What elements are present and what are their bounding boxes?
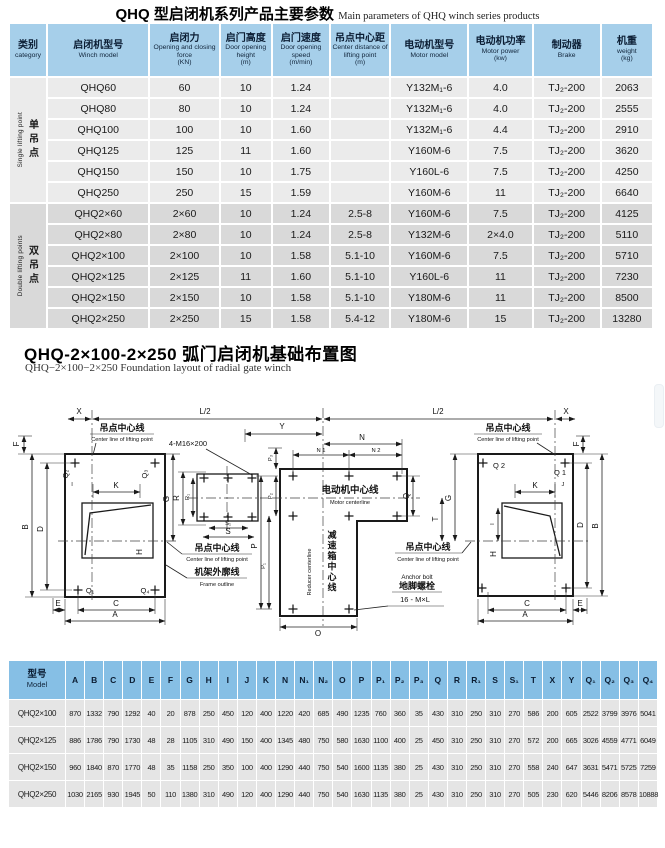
value-cell: 11 bbox=[469, 267, 531, 286]
reducer-pad: R R₁ S₁ S bbox=[172, 466, 268, 537]
value-cell: 60 bbox=[150, 78, 218, 97]
value-cell: 100 bbox=[238, 754, 256, 780]
column-header: 启闭力Opening and closing force(KN) bbox=[150, 24, 218, 76]
value-cell: 1290 bbox=[276, 781, 294, 807]
value-cell: 620 bbox=[562, 781, 580, 807]
bolt-label-q1: Q₁ bbox=[86, 586, 95, 595]
value-cell: 558 bbox=[524, 754, 542, 780]
svg-text:Anchor bolt: Anchor bolt bbox=[401, 574, 433, 581]
value-cell: Y160M-6 bbox=[391, 141, 467, 160]
column-header: I bbox=[219, 661, 237, 699]
value-cell: 1.24 bbox=[273, 78, 329, 97]
value-cell: 2×250 bbox=[150, 309, 218, 328]
svg-text:J: J bbox=[562, 482, 565, 488]
value-cell: TJ₂-200 bbox=[534, 183, 600, 202]
lifting-callout-top-right: 吊点中心线 Center line of lifting point bbox=[474, 422, 554, 454]
value-cell: 685 bbox=[314, 700, 332, 726]
svg-text:机架外廓线: 机架外廓线 bbox=[194, 566, 239, 577]
svg-text:G: G bbox=[444, 495, 453, 501]
value-cell: 1158 bbox=[181, 754, 199, 780]
value-cell: 25 bbox=[410, 727, 428, 753]
bolt-spec-callout: 4-M16×200 bbox=[169, 439, 207, 448]
svg-text:地脚螺栓: 地脚螺栓 bbox=[399, 580, 435, 591]
value-cell: Y180M-6 bbox=[391, 288, 467, 307]
value-cell: 270 bbox=[505, 754, 523, 780]
value-cell: 200 bbox=[543, 727, 561, 753]
table-row: QHQ2×15096018408701770483511582503501004… bbox=[9, 754, 657, 780]
svg-text:吊点中心线: 吊点中心线 bbox=[405, 541, 450, 552]
model-cell: QHQ2×125 bbox=[48, 267, 148, 286]
value-cell: TJ₂-200 bbox=[534, 204, 600, 223]
value-cell: TJ₂-200 bbox=[534, 162, 600, 181]
value-cell: 7.5 bbox=[469, 162, 531, 181]
column-header: X bbox=[543, 661, 561, 699]
value-cell: 310 bbox=[448, 781, 466, 807]
value-cell: 3620 bbox=[602, 141, 652, 160]
value-cell: 13280 bbox=[602, 309, 652, 328]
value-cell: 100 bbox=[150, 120, 218, 139]
value-cell: 15 bbox=[221, 183, 271, 202]
value-cell: 350 bbox=[219, 754, 237, 780]
value-cell: 8500 bbox=[602, 288, 652, 307]
value-cell: 5.1-10 bbox=[331, 288, 389, 307]
reducer-centerline-label-en: Reducer centerline bbox=[307, 549, 313, 596]
value-cell: 2×150 bbox=[150, 288, 218, 307]
value-cell: 310 bbox=[200, 781, 218, 807]
value-cell: 430 bbox=[429, 781, 447, 807]
value-cell: 310 bbox=[448, 700, 466, 726]
value-cell: Y180M-6 bbox=[391, 309, 467, 328]
anchor-bolt-callout: Anchor bolt 地脚螺栓 16 - M×L bbox=[354, 574, 444, 610]
value-cell: 430 bbox=[429, 754, 447, 780]
value-cell: 10 bbox=[221, 99, 271, 118]
svg-text:Center line of lifting point: Center line of lifting point bbox=[186, 557, 248, 563]
value-cell: 878 bbox=[181, 700, 199, 726]
value-cell: 2×80 bbox=[150, 225, 218, 244]
value-cell: TJ₂-200 bbox=[534, 78, 600, 97]
value-cell: 5.1-10 bbox=[331, 267, 389, 286]
model-cell: QHQ2×100 bbox=[9, 700, 65, 726]
svg-text:Center line of lifting point: Center line of lifting point bbox=[397, 557, 459, 563]
svg-text:16 - M×L: 16 - M×L bbox=[400, 595, 430, 604]
svg-text:N 1: N 1 bbox=[316, 448, 325, 454]
value-cell: 120 bbox=[238, 781, 256, 807]
value-cell: 440 bbox=[295, 754, 313, 780]
table-row: QHQ250250151.59Y160M-611TJ₂-2006640 bbox=[10, 183, 652, 202]
value-cell: 605 bbox=[562, 700, 580, 726]
column-header: G bbox=[181, 661, 199, 699]
column-header: J bbox=[238, 661, 256, 699]
value-cell: 1.59 bbox=[273, 183, 329, 202]
column-header: N₂ bbox=[314, 661, 332, 699]
column-header: H bbox=[200, 661, 218, 699]
value-cell: 48 bbox=[142, 727, 160, 753]
value-cell: 250 bbox=[467, 700, 485, 726]
value-cell: 540 bbox=[333, 781, 351, 807]
value-cell: 5446 bbox=[582, 781, 600, 807]
value-cell: 50 bbox=[142, 781, 160, 807]
value-cell: 6049 bbox=[639, 727, 657, 753]
motor-centerline-label-en: Motor centerline bbox=[330, 500, 370, 506]
category-cell: Single lifting point单吊点 bbox=[10, 78, 46, 202]
value-cell: 270 bbox=[505, 781, 523, 807]
column-header: C bbox=[104, 661, 122, 699]
value-cell: 1.24 bbox=[273, 204, 329, 223]
bolt-label-q2-right: Q 2 bbox=[493, 461, 505, 470]
value-cell: 1380 bbox=[181, 781, 199, 807]
value-cell: 7.5 bbox=[469, 141, 531, 160]
model-cell: QHQ2×125 bbox=[9, 727, 65, 753]
value-cell: 310 bbox=[486, 700, 504, 726]
value-cell: TJ₂-200 bbox=[534, 267, 600, 286]
svg-text:吊点中心线: 吊点中心线 bbox=[99, 422, 144, 433]
value-cell: Y160M-6 bbox=[391, 246, 467, 265]
value-cell: 1730 bbox=[123, 727, 141, 753]
table-row: QHQ100100101.60Y132M₁-64.4TJ₂-2002910 bbox=[10, 120, 652, 139]
model-cell: QHQ125 bbox=[48, 141, 148, 160]
value-cell: 490 bbox=[219, 727, 237, 753]
table-row: QHQ2×1502×150101.585.1-10Y180M-611TJ₂-20… bbox=[10, 288, 652, 307]
column-header: P₁ bbox=[372, 661, 390, 699]
svg-text:B: B bbox=[591, 523, 600, 528]
value-cell: 8206 bbox=[601, 781, 619, 807]
value-cell: 400 bbox=[257, 781, 275, 807]
value-cell: 750 bbox=[314, 754, 332, 780]
svg-text:H: H bbox=[135, 549, 144, 555]
section-subtitle: QHQ−2×100−2×250 Foundation layout of rad… bbox=[25, 362, 291, 374]
value-cell: 1786 bbox=[85, 727, 103, 753]
page-title-zh: QHQ 型启闭机系列产品主要参数 bbox=[116, 6, 334, 23]
svg-text:I: I bbox=[490, 523, 496, 525]
value-cell: 250 bbox=[200, 754, 218, 780]
value-cell: 750 bbox=[314, 781, 332, 807]
value-cell: 480 bbox=[295, 727, 313, 753]
column-header: A bbox=[66, 661, 84, 699]
svg-text:H: H bbox=[489, 551, 498, 557]
model-cell: QHQ2×80 bbox=[48, 225, 148, 244]
diagram-svg: Q₂ Q₃ Q₁ Q₄ F B D X L/2 E C A K I H G R … bbox=[10, 386, 655, 658]
value-cell: 870 bbox=[66, 700, 84, 726]
svg-text:D: D bbox=[576, 522, 585, 528]
main-parameters-table: 类别category启闭机型号Winch model启闭力Opening and… bbox=[8, 22, 654, 330]
model-cell: QHQ250 bbox=[48, 183, 148, 202]
value-cell: 15 bbox=[469, 309, 531, 328]
value-cell: 240 bbox=[543, 754, 561, 780]
svg-text:吊点中心线: 吊点中心线 bbox=[485, 422, 530, 433]
value-cell: 2×100 bbox=[150, 246, 218, 265]
value-cell: TJ₂-200 bbox=[534, 141, 600, 160]
svg-text:X: X bbox=[563, 407, 569, 416]
value-cell: 7259 bbox=[639, 754, 657, 780]
value-cell: 2×125 bbox=[150, 267, 218, 286]
value-cell: 7.5 bbox=[469, 246, 531, 265]
table-row: QHQ8080101.24Y132M₁-64.0TJ₂-2002555 bbox=[10, 99, 652, 118]
value-cell: 8578 bbox=[620, 781, 638, 807]
bolt-label-q2: Q₂ bbox=[61, 470, 70, 479]
value-cell: TJ₂-200 bbox=[534, 99, 600, 118]
value-cell: 4.0 bbox=[469, 99, 531, 118]
value-cell: 270 bbox=[505, 700, 523, 726]
value-cell: 360 bbox=[391, 700, 409, 726]
column-header: 制动器Brake bbox=[534, 24, 600, 76]
value-cell: 1135 bbox=[372, 781, 390, 807]
value-cell: 380 bbox=[391, 754, 409, 780]
column-header: P bbox=[352, 661, 370, 699]
value-cell: 7230 bbox=[602, 267, 652, 286]
model-cell: QHQ2×250 bbox=[9, 781, 65, 807]
value-cell: 250 bbox=[467, 727, 485, 753]
value-cell: 11 bbox=[221, 141, 271, 160]
value-cell: 4250 bbox=[602, 162, 652, 181]
value-cell: 80 bbox=[150, 99, 218, 118]
value-cell: 5110 bbox=[602, 225, 652, 244]
column-header: T bbox=[524, 661, 542, 699]
svg-text:Center line of lifting point: Center line of lifting point bbox=[477, 437, 539, 443]
svg-text:S: S bbox=[225, 527, 230, 536]
column-header: 启闭机型号Winch model bbox=[48, 24, 148, 76]
value-cell bbox=[331, 162, 389, 181]
value-cell: 5.1-10 bbox=[331, 246, 389, 265]
svg-text:T: T bbox=[431, 516, 440, 521]
value-cell: 4559 bbox=[601, 727, 619, 753]
value-cell: 2×4.0 bbox=[469, 225, 531, 244]
value-cell: 10 bbox=[221, 225, 271, 244]
table-row: QHQ2×1252×125111.605.1-10Y160L-611TJ₂-20… bbox=[10, 267, 652, 286]
value-cell: 6640 bbox=[602, 183, 652, 202]
value-cell: 310 bbox=[448, 727, 466, 753]
value-cell: 2522 bbox=[582, 700, 600, 726]
value-cell: 760 bbox=[372, 700, 390, 726]
value-cell: 10 bbox=[221, 288, 271, 307]
value-cell: 1135 bbox=[372, 754, 390, 780]
value-cell: Y132M₁-6 bbox=[391, 99, 467, 118]
value-cell: 1.60 bbox=[273, 267, 329, 286]
value-cell: 930 bbox=[104, 781, 122, 807]
value-cell: 790 bbox=[104, 727, 122, 753]
svg-text:Y: Y bbox=[279, 422, 285, 431]
value-cell: Y160L-6 bbox=[391, 267, 467, 286]
value-cell: 35 bbox=[410, 700, 428, 726]
column-header: P₃ bbox=[410, 661, 428, 699]
svg-text:L/2: L/2 bbox=[199, 407, 211, 416]
svg-text:N 2: N 2 bbox=[371, 448, 380, 454]
column-header: B bbox=[85, 661, 103, 699]
value-cell: 1332 bbox=[85, 700, 103, 726]
value-cell: 400 bbox=[391, 727, 409, 753]
page-edge-indicator bbox=[654, 384, 664, 428]
value-cell: 25 bbox=[410, 781, 428, 807]
value-cell: 1.75 bbox=[273, 162, 329, 181]
value-cell: 505 bbox=[524, 781, 542, 807]
svg-text:E: E bbox=[55, 599, 60, 608]
reducer-centerline-label-zh: 减速箱中心线 bbox=[327, 529, 336, 593]
svg-text:Center line of lifting point: Center line of lifting point bbox=[91, 437, 153, 443]
value-cell: Y132M-6 bbox=[391, 225, 467, 244]
value-cell: 250 bbox=[467, 781, 485, 807]
svg-text:L/2: L/2 bbox=[432, 407, 444, 416]
value-cell: 3026 bbox=[582, 727, 600, 753]
column-header: D bbox=[123, 661, 141, 699]
value-cell: 10 bbox=[221, 162, 271, 181]
svg-text:P₃: P₃ bbox=[268, 454, 274, 461]
svg-text:F: F bbox=[12, 441, 21, 446]
column-header: R₁ bbox=[467, 661, 485, 699]
table-row: Single lifting point单吊点QHQ6060101.24Y132… bbox=[10, 78, 652, 97]
value-cell: 400 bbox=[257, 700, 275, 726]
value-cell: 1.24 bbox=[273, 225, 329, 244]
value-cell: 1770 bbox=[123, 754, 141, 780]
value-cell: 870 bbox=[104, 754, 122, 780]
value-cell: 490 bbox=[333, 700, 351, 726]
column-header: 机重weight(kg) bbox=[602, 24, 652, 76]
svg-text:Frame outline: Frame outline bbox=[200, 582, 234, 588]
value-cell: 4.0 bbox=[469, 78, 531, 97]
value-cell: 790 bbox=[104, 700, 122, 726]
value-cell: 380 bbox=[391, 781, 409, 807]
column-header: Q₄ bbox=[639, 661, 657, 699]
column-header: O bbox=[333, 661, 351, 699]
model-cell: QHQ100 bbox=[48, 120, 148, 139]
value-cell: 960 bbox=[66, 754, 84, 780]
value-cell: 1945 bbox=[123, 781, 141, 807]
value-cell: 5041 bbox=[639, 700, 657, 726]
model-cell: QHQ60 bbox=[48, 78, 148, 97]
value-cell: 1105 bbox=[181, 727, 199, 753]
foundation-layout-diagram: Q₂ Q₃ Q₁ Q₄ F B D X L/2 E C A K I H G R … bbox=[10, 386, 655, 663]
value-cell: 48 bbox=[142, 754, 160, 780]
value-cell: 2555 bbox=[602, 99, 652, 118]
column-header: Y bbox=[562, 661, 580, 699]
foundation-dimensions-table: 型号ModelABCDEFGHIJKNN₁N₂OPP₁P₂P₃QRR₁SS₁TX… bbox=[8, 660, 658, 808]
value-cell: 5.4-12 bbox=[331, 309, 389, 328]
value-cell: 11 bbox=[469, 183, 531, 202]
value-cell: 150 bbox=[238, 727, 256, 753]
value-cell: 420 bbox=[295, 700, 313, 726]
svg-text:O: O bbox=[315, 629, 321, 638]
value-cell: TJ₂-200 bbox=[534, 288, 600, 307]
value-cell: 230 bbox=[543, 781, 561, 807]
value-cell: 440 bbox=[295, 781, 313, 807]
value-cell: 5710 bbox=[602, 246, 652, 265]
value-cell: TJ₂-200 bbox=[534, 225, 600, 244]
value-cell: 10888 bbox=[639, 781, 657, 807]
column-header: R bbox=[448, 661, 466, 699]
value-cell: 1.58 bbox=[273, 309, 329, 328]
lifting-callout-mid-right: 吊点中心线 Center line of lifting point bbox=[395, 541, 471, 563]
value-cell: 3631 bbox=[582, 754, 600, 780]
value-cell: 1630 bbox=[352, 781, 370, 807]
svg-text:B: B bbox=[21, 524, 30, 529]
column-header: 启门速度Door opening speed(m/min) bbox=[273, 24, 329, 76]
column-header: 启门高度Door opening height(m) bbox=[221, 24, 271, 76]
value-cell: TJ₂-200 bbox=[534, 246, 600, 265]
svg-text:P₁: P₁ bbox=[261, 563, 267, 569]
value-cell: 7.5 bbox=[469, 204, 531, 223]
value-cell: 450 bbox=[219, 700, 237, 726]
column-header: N bbox=[276, 661, 294, 699]
table-row: QHQ2×2502×250151.585.4-12Y180M-615TJ₂-20… bbox=[10, 309, 652, 328]
value-cell: 1235 bbox=[352, 700, 370, 726]
svg-text:P₂: P₂ bbox=[268, 493, 274, 499]
value-cell: 540 bbox=[333, 754, 351, 780]
value-cell: 2.5-8 bbox=[331, 225, 389, 244]
value-cell: 647 bbox=[562, 754, 580, 780]
model-cell: QHQ150 bbox=[48, 162, 148, 181]
value-cell: Y160L-6 bbox=[391, 162, 467, 181]
value-cell: 310 bbox=[200, 727, 218, 753]
value-cell: 125 bbox=[150, 141, 218, 160]
value-cell: 11 bbox=[221, 267, 271, 286]
column-header: E bbox=[142, 661, 160, 699]
model-cell: QHQ2×150 bbox=[9, 754, 65, 780]
value-cell: 1290 bbox=[276, 754, 294, 780]
svg-text:N: N bbox=[359, 433, 365, 442]
svg-text:A: A bbox=[522, 610, 528, 619]
svg-text:A: A bbox=[112, 610, 118, 619]
column-header: F bbox=[161, 661, 179, 699]
value-cell: 1.60 bbox=[273, 120, 329, 139]
column-header: N₁ bbox=[295, 661, 313, 699]
value-cell: 4771 bbox=[620, 727, 638, 753]
value-cell bbox=[331, 141, 389, 160]
value-cell: TJ₂-200 bbox=[534, 309, 600, 328]
model-cell: QHQ80 bbox=[48, 99, 148, 118]
value-cell: 250 bbox=[467, 754, 485, 780]
value-cell: 1220 bbox=[276, 700, 294, 726]
column-header: 电动机功率Motor power(kw) bbox=[469, 24, 531, 76]
svg-text:F: F bbox=[572, 441, 581, 446]
value-cell: 270 bbox=[505, 727, 523, 753]
value-cell: 1100 bbox=[372, 727, 390, 753]
column-header: P₂ bbox=[391, 661, 409, 699]
value-cell: 150 bbox=[150, 162, 218, 181]
value-cell: 1.24 bbox=[273, 99, 329, 118]
lifting-callout-mid-left: 吊点中心线 Center line of lifting point bbox=[167, 542, 252, 563]
svg-text:E: E bbox=[577, 599, 582, 608]
value-cell: Y132M₁-6 bbox=[391, 120, 467, 139]
svg-text:X: X bbox=[76, 407, 82, 416]
model-cell: QHQ2×100 bbox=[48, 246, 148, 265]
left-dimensions: F B D X L/2 E C A K I H G bbox=[12, 407, 322, 625]
value-cell: 430 bbox=[429, 700, 447, 726]
column-header: 电动机型号Motor model bbox=[391, 24, 467, 76]
column-header: Q₃ bbox=[620, 661, 638, 699]
svg-text:吊点中心线: 吊点中心线 bbox=[194, 542, 239, 553]
column-header: Q₂ bbox=[601, 661, 619, 699]
value-cell: Y160M-6 bbox=[391, 204, 467, 223]
svg-text:Q: Q bbox=[402, 493, 411, 499]
model-column-header: 型号Model bbox=[9, 661, 65, 699]
value-cell: 450 bbox=[429, 727, 447, 753]
svg-text:R: R bbox=[172, 495, 181, 501]
lifting-callout-top-left: 吊点中心线 Center line of lifting point bbox=[90, 422, 154, 455]
value-cell: 580 bbox=[333, 727, 351, 753]
svg-text:C: C bbox=[113, 599, 119, 608]
value-cell: 572 bbox=[524, 727, 542, 753]
model-cell: QHQ2×150 bbox=[48, 288, 148, 307]
column-header: S₁ bbox=[505, 661, 523, 699]
value-cell: 250 bbox=[150, 183, 218, 202]
value-cell: TJ₂-200 bbox=[534, 120, 600, 139]
value-cell: 35 bbox=[161, 754, 179, 780]
svg-text:R₁: R₁ bbox=[185, 494, 191, 500]
value-cell: 110 bbox=[161, 781, 179, 807]
frame-outline-callout: 机架外廓线 Frame outline bbox=[166, 565, 247, 588]
motor-centerline-label-zh: 电动机中心线 bbox=[321, 484, 379, 496]
category-cell: Double lifting points双吊点 bbox=[10, 204, 46, 328]
value-cell bbox=[331, 78, 389, 97]
value-cell: 665 bbox=[562, 727, 580, 753]
